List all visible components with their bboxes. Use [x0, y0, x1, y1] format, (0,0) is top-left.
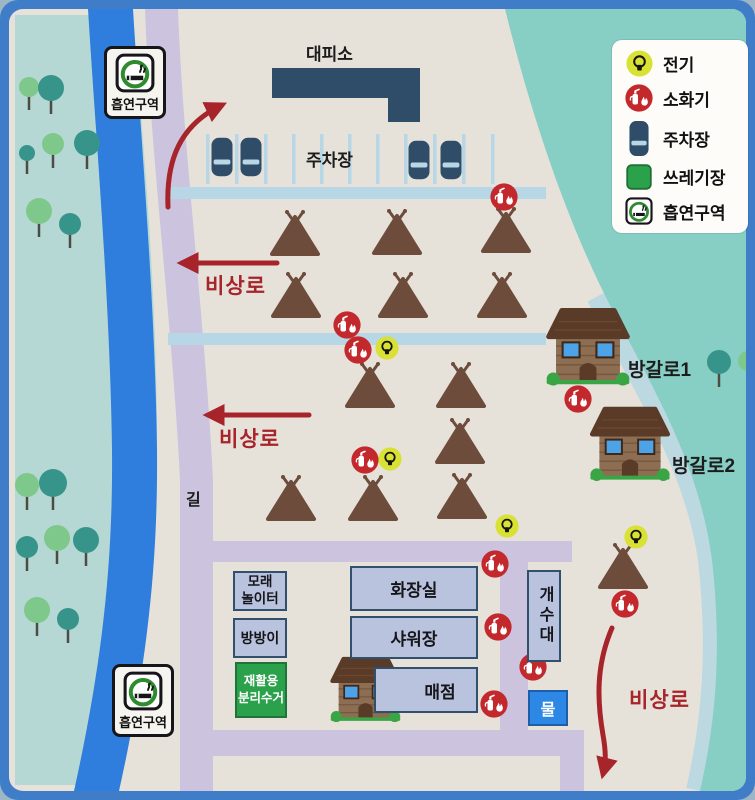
fire-extinguisher-icon: [624, 84, 654, 112]
legend-item-fire-extinguisher: 소화기: [624, 84, 738, 112]
bungalow-1-label: 방갈로1: [628, 355, 691, 382]
fire-extinguisher-icon: [490, 183, 517, 210]
tree-icon: [707, 350, 731, 374]
trash-area-icon: [624, 164, 654, 190]
emergency-route-label-1: 비상로: [205, 270, 266, 300]
legend-item-smoking: 흡연구역: [624, 197, 738, 225]
fire-extinguisher-icon: [333, 311, 360, 338]
bottom-road-branch: [560, 740, 584, 791]
tree-icon: [16, 536, 38, 558]
car-icon: [241, 138, 262, 176]
tree-icon: [19, 145, 35, 161]
tree-icon: [26, 198, 52, 224]
toilet-box: 화장실: [350, 566, 478, 611]
water-box: 물: [528, 690, 568, 726]
tree-icon: [15, 473, 39, 497]
legend-label: 흡연구역: [663, 199, 726, 224]
electricity-icon: [375, 336, 398, 359]
electricity-icon: [624, 525, 647, 548]
legend-item-parking: 주차장: [624, 120, 738, 157]
legend-label: 주차장: [663, 126, 710, 151]
legend-item-electricity: 전기: [624, 50, 738, 77]
smoking-area-icon: [624, 197, 654, 225]
shelter-label: 대피소: [306, 40, 353, 65]
tree-icon: [38, 75, 64, 101]
smoking-area-badge-bottom: 흡연구역: [112, 664, 174, 737]
camp-lane-1: [168, 187, 546, 199]
legend-panel: 전기 소화기 주차장 쓰레기장 흡연구역: [612, 40, 748, 233]
road-label: 길: [186, 486, 201, 510]
parking-label: 주차장: [306, 146, 353, 171]
parking-icon: [624, 120, 654, 157]
sink-box: 개수대: [527, 570, 561, 662]
fire-extinguisher-icon: [481, 550, 508, 577]
shower-box: 샤워장: [350, 616, 478, 659]
legend-item-trash: 쓰레기장: [624, 164, 738, 190]
fire-extinguisher-icon: [564, 385, 591, 412]
smoking-area-badge-label: 흡연구역: [119, 712, 167, 731]
bungalow-2-icon: [590, 409, 669, 481]
bottom-road: [180, 730, 584, 756]
car-icon: [212, 138, 233, 176]
recycling-box: 재활용 분리수거: [235, 662, 287, 718]
legend-label: 쓰레기장: [663, 164, 726, 189]
legend-label: 전기: [663, 51, 694, 76]
fire-extinguisher-icon: [351, 446, 378, 473]
smoking-area-badge-top: 흡연구역: [104, 46, 166, 119]
store-box: 매점: [374, 667, 478, 713]
tree-icon: [24, 597, 50, 623]
campground-map-sign: 대피소 주차장 비상로 비상로 비상로 길 방갈로1 방갈로2 흡연구역 흡연구…: [0, 0, 755, 800]
tree-icon: [74, 130, 100, 156]
electricity-icon: [624, 50, 654, 77]
tree-icon: [73, 527, 99, 553]
tree-icon: [39, 469, 67, 497]
tree-icon: [19, 77, 39, 97]
bungalow-1-icon: [547, 310, 630, 385]
emergency-route-label-2: 비상로: [219, 423, 280, 453]
emergency-route-label-3: 비상로: [629, 684, 690, 714]
car-icon: [441, 141, 462, 179]
fire-extinguisher-icon: [484, 613, 511, 640]
sand-playground-box: 모래 놀이터: [233, 571, 287, 611]
fire-extinguisher-icon: [480, 690, 507, 717]
tree-icon: [57, 608, 79, 630]
tree-icon: [44, 525, 70, 551]
tree-icon: [59, 213, 81, 235]
smoking-icon: [123, 671, 163, 711]
car-icon: [409, 141, 430, 179]
electricity-icon: [378, 447, 401, 470]
fire-extinguisher-icon: [611, 590, 638, 617]
electricity-icon: [495, 514, 518, 537]
smoking-area-badge-label: 흡연구역: [111, 94, 159, 113]
trampoline-box: 방방이: [233, 618, 287, 658]
legend-label: 소화기: [663, 86, 710, 111]
smoking-icon: [115, 53, 155, 93]
fire-extinguisher-icon: [344, 336, 371, 363]
bungalow-2-label: 방갈로2: [672, 451, 735, 478]
tree-icon: [42, 133, 64, 155]
